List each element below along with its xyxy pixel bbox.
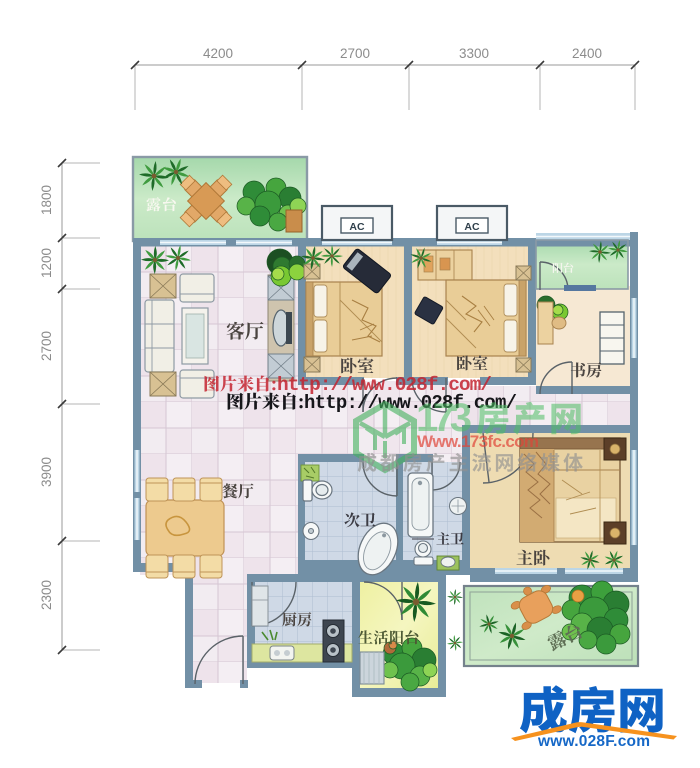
- svg-text:Www.173fc.com: Www.173fc.com: [417, 432, 539, 451]
- svg-text:2400: 2400: [572, 46, 602, 61]
- svg-text:3900: 3900: [39, 457, 54, 487]
- svg-text:1200: 1200: [39, 248, 54, 278]
- svg-text:2300: 2300: [39, 580, 54, 610]
- svg-text:AC: AC: [349, 221, 365, 233]
- svg-text:www.028F.com: www.028F.com: [537, 733, 650, 750]
- svg-text:2700: 2700: [39, 331, 54, 361]
- svg-text:1800: 1800: [39, 185, 54, 215]
- svg-text:3300: 3300: [459, 46, 489, 61]
- svg-text:AC: AC: [464, 221, 480, 233]
- svg-text:4200: 4200: [203, 46, 233, 61]
- svg-text:2700: 2700: [340, 46, 370, 61]
